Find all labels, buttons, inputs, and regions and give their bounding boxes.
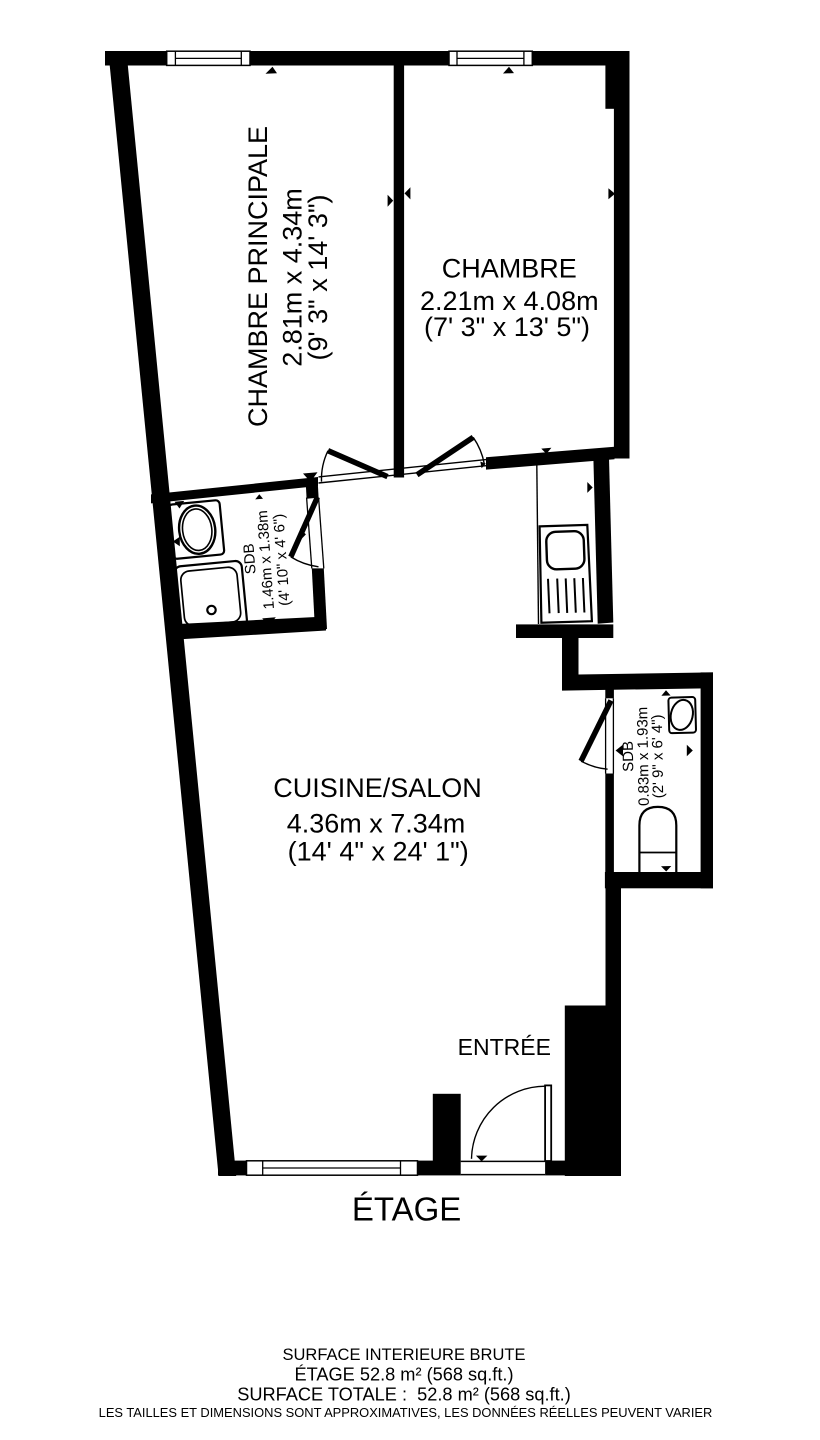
svg-text:ÉTAGE 52.8 m² (568 sq.ft.): ÉTAGE 52.8 m² (568 sq.ft.) — [295, 1365, 514, 1385]
svg-text:ENTRÉE: ENTRÉE — [458, 1034, 551, 1060]
svg-text:CUISINE/SALON: CUISINE/SALON — [273, 773, 482, 803]
svg-text:(14' 4" x 24' 1"): (14' 4" x 24' 1") — [288, 836, 469, 866]
svg-text:SURFACE INTERIEURE BRUTE: SURFACE INTERIEURE BRUTE — [283, 1346, 526, 1364]
svg-text:(9' 3" x 14' 3"): (9' 3" x 14' 3") — [303, 194, 333, 360]
svg-text:CHAMBRE PRINCIPALE: CHAMBRE PRINCIPALE — [243, 126, 273, 427]
svg-text:SURFACE TOTALE : 52.8 m² (568: SURFACE TOTALE : 52.8 m² (568 sq.ft.) — [237, 1385, 571, 1405]
svg-text:(2' 9" x 6' 4"): (2' 9" x 6' 4") — [649, 714, 667, 798]
svg-text:ÉTAGE: ÉTAGE — [352, 1191, 461, 1228]
svg-text:CHAMBRE: CHAMBRE — [442, 254, 577, 284]
svg-text:LES TAILLES ET DIMENSIONS SONT: LES TAILLES ET DIMENSIONS SONT APPROXIMA… — [99, 1405, 713, 1420]
svg-text:4.36m x 7.34m: 4.36m x 7.34m — [287, 809, 466, 839]
svg-text:(7' 3" x 13' 5"): (7' 3" x 13' 5") — [424, 312, 590, 342]
